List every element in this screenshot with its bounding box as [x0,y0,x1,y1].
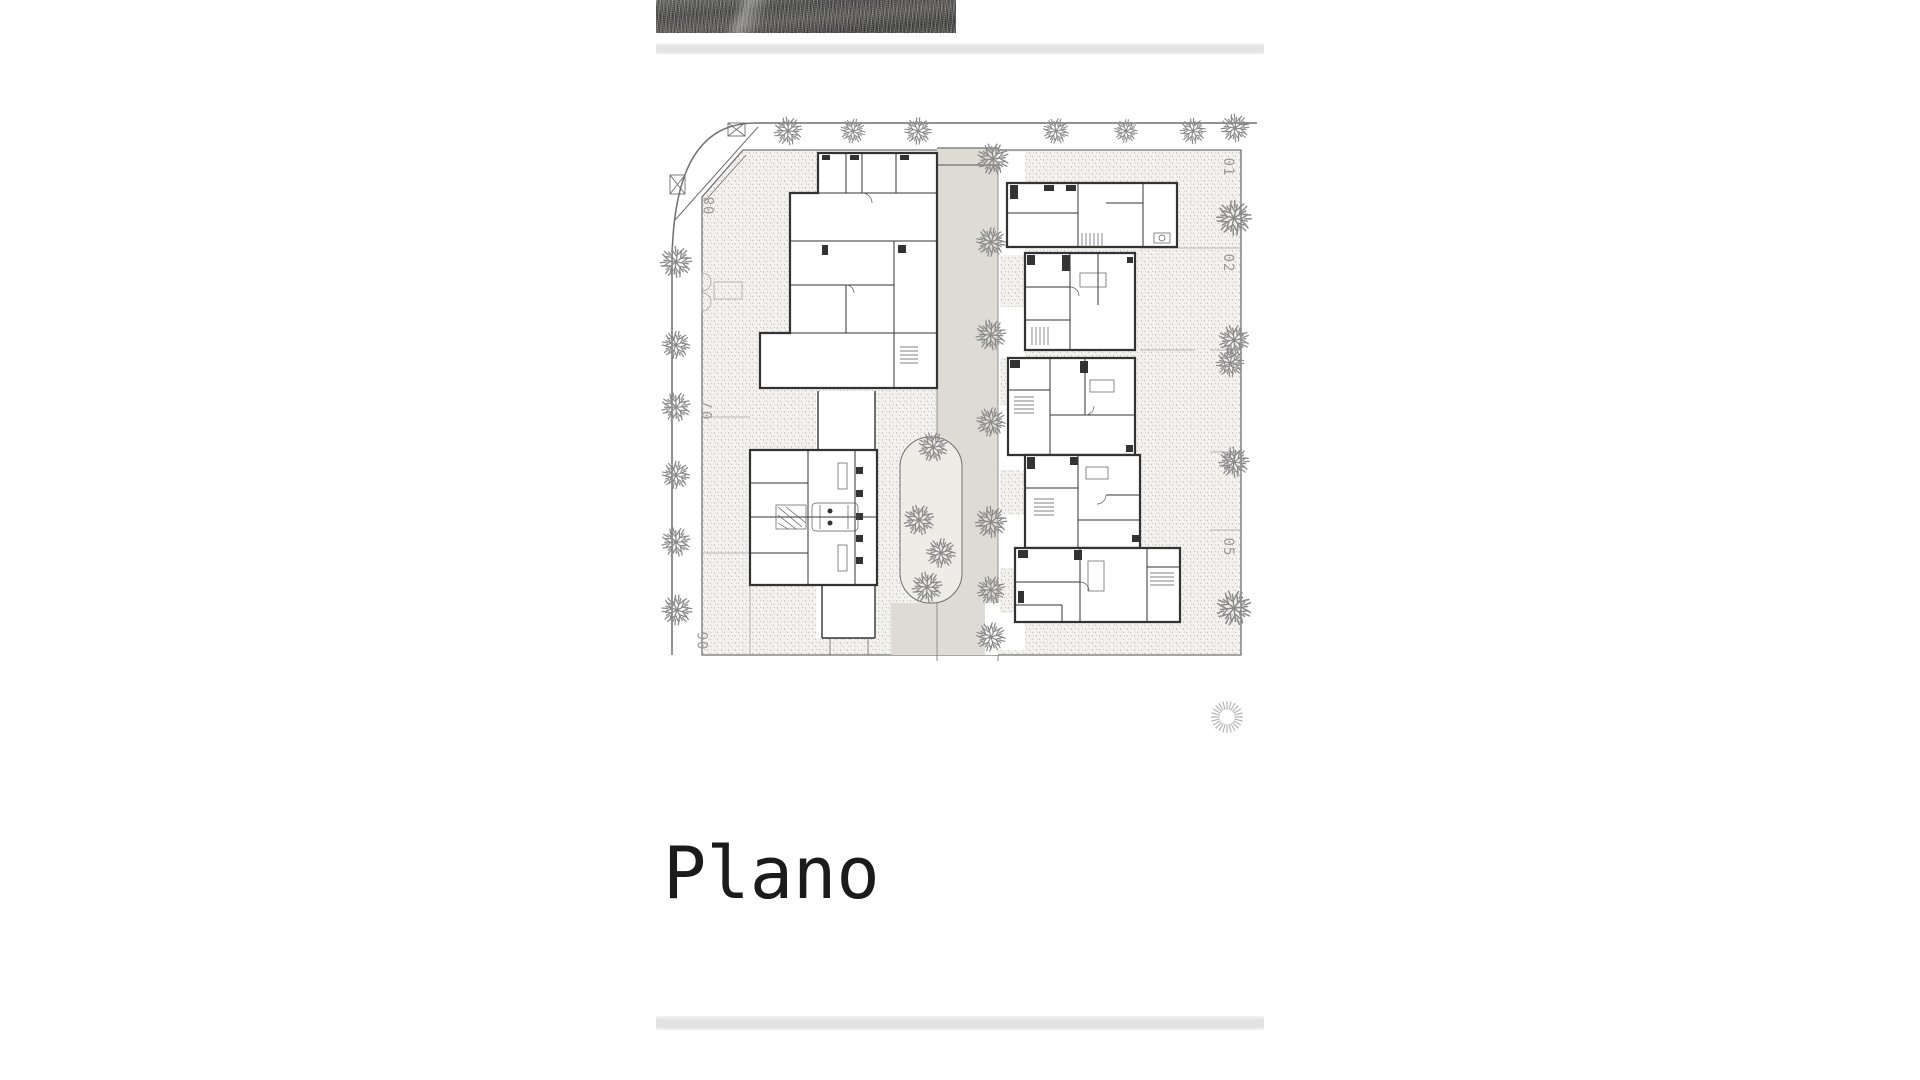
tree-icon [902,115,934,147]
tree-icon [658,244,694,280]
lot-label-06: 06 [696,631,712,650]
gate-post-icon [670,175,685,194]
lot-label-08: 08 [702,196,718,215]
landscape-photo [656,0,956,33]
tree-icon [1177,115,1208,146]
tree-icon [1039,114,1073,148]
tree-icon [773,116,804,147]
site-plan-drawing: 08 07 06 01 02 03 04 05 [650,95,1280,665]
house-unit-03 [1008,358,1135,455]
bottom-divider-bar [656,1016,1264,1030]
tree-icon [659,592,696,629]
tree-icon [657,388,696,427]
sun-burst-icon [1207,697,1247,737]
lot-label-02: 02 [1220,254,1236,273]
house-unit-05 [1015,548,1180,622]
lot-label-01: 01 [1220,158,1236,177]
lot-label-05: 05 [1220,538,1236,557]
tree-icon [661,527,691,557]
tree-icon [1217,110,1253,146]
house-unit-04 [1025,455,1140,548]
tree-icon [660,329,692,361]
lot-label-07: 07 [700,401,716,420]
page: 08 07 06 01 02 03 04 05 [0,0,1920,1080]
house-unit-02 [1025,253,1135,350]
tree-icon [658,457,694,493]
house-unit-01 [1007,183,1177,247]
title-line: Plano [663,832,880,914]
tree-icon [840,118,867,145]
tree-icon [1111,116,1141,146]
top-divider-bar [656,43,1264,54]
